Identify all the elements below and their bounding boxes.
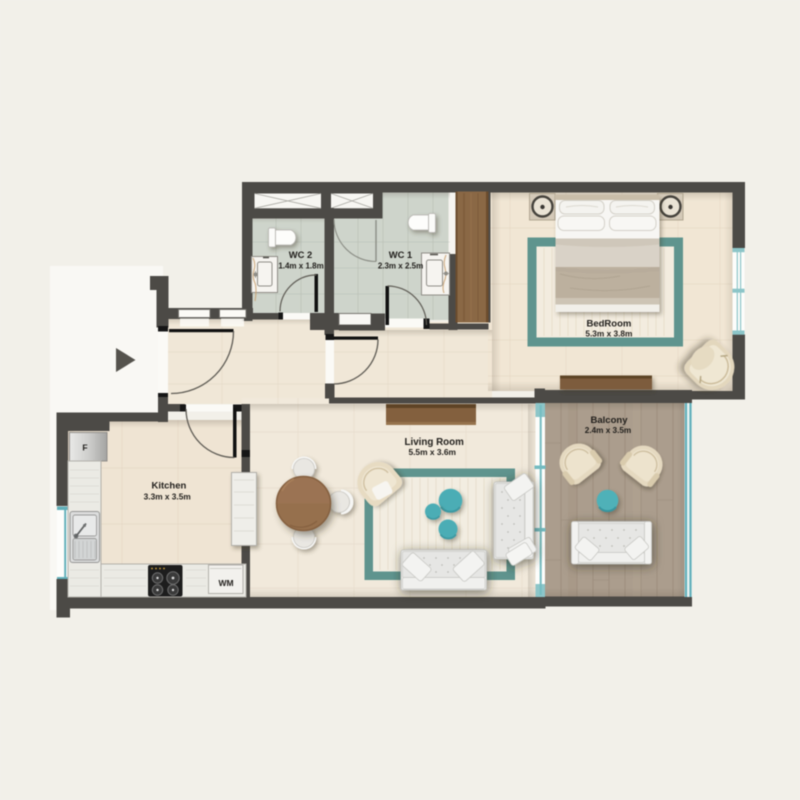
svg-text:Kitchen: Kitchen (151, 481, 186, 492)
svg-text:5.5m x 3.6m: 5.5m x 3.6m (408, 447, 456, 457)
svg-text:3.3m x 3.5m: 3.3m x 3.5m (144, 492, 191, 502)
svg-text:2.4m x 3.5m: 2.4m x 3.5m (585, 426, 631, 435)
svg-text:WC 2: WC 2 (289, 249, 312, 260)
svg-text:1.4m x 1.8m: 1.4m x 1.8m (278, 261, 323, 270)
svg-text:2.3m x 2.5m: 2.3m x 2.5m (378, 261, 423, 270)
svg-text:Balcony: Balcony (591, 415, 629, 426)
svg-text:5.3m x 3.8m: 5.3m x 3.8m (585, 329, 632, 339)
svg-text:F: F (82, 443, 87, 453)
svg-text:WM: WM (218, 578, 233, 588)
svg-text:WC 1: WC 1 (389, 249, 412, 260)
